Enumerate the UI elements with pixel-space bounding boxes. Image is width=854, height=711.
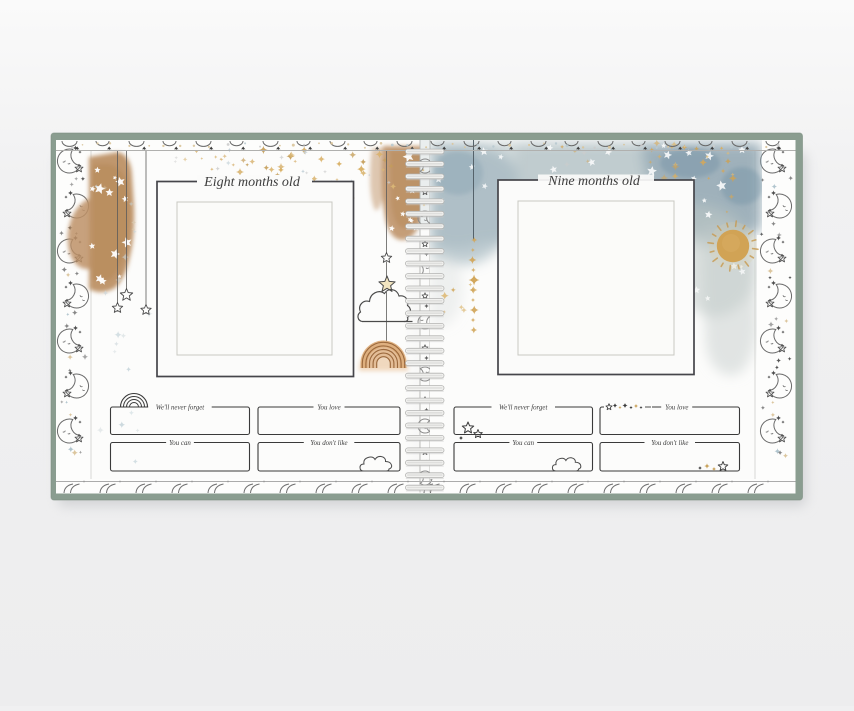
svg-text:We'll never forget: We'll never forget bbox=[156, 405, 206, 412]
svg-text:You can: You can bbox=[512, 440, 534, 447]
svg-text:You love: You love bbox=[317, 405, 340, 412]
svg-text:You can: You can bbox=[169, 440, 191, 447]
svg-text:Eight months old: Eight months old bbox=[203, 175, 301, 190]
svg-text:We'll never forget: We'll never forget bbox=[499, 405, 549, 412]
svg-text:You don't like: You don't like bbox=[651, 440, 688, 447]
svg-text:Nine months old: Nine months old bbox=[547, 174, 641, 189]
svg-text:You don't like: You don't like bbox=[310, 440, 347, 447]
svg-text:You love: You love bbox=[665, 405, 688, 412]
